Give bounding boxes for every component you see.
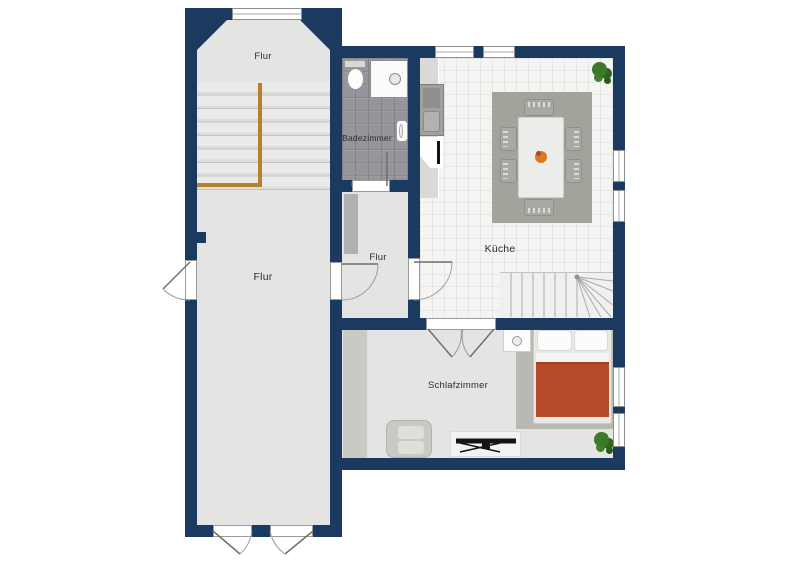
hall-cabinet [344, 194, 358, 254]
window [232, 8, 302, 20]
wall [330, 318, 426, 330]
wall [613, 222, 625, 367]
window [435, 46, 474, 58]
stair-railing-horizontal [197, 183, 262, 187]
wardrobe [343, 330, 368, 458]
window [483, 46, 515, 58]
shower-icon [370, 60, 408, 98]
stove-top-icon [423, 88, 440, 108]
window [613, 367, 625, 407]
oven-icon [423, 111, 440, 132]
door-sill [426, 318, 496, 330]
pillow-icon [537, 330, 572, 351]
room-label-kueche: Küche [460, 243, 540, 255]
room-label-schlafzimmer: Schlafzimmer [398, 380, 518, 391]
wall [613, 182, 625, 190]
room-label-badezimmer: Badezimmer [327, 133, 407, 143]
wall [313, 525, 342, 537]
wall [515, 46, 625, 58]
staircase [197, 82, 330, 190]
window [613, 190, 625, 222]
door-sill [408, 258, 420, 300]
room-label-flur-small: Flur [348, 252, 408, 263]
window [613, 150, 625, 182]
wall [330, 458, 625, 470]
wall [185, 525, 213, 537]
door-sill [352, 180, 390, 192]
toilet-tank-icon [344, 60, 366, 68]
wall [474, 46, 483, 58]
door-sill [270, 525, 313, 537]
armchair-cushion [398, 441, 424, 454]
chair-icon [565, 159, 582, 183]
wall [613, 46, 625, 150]
chair-icon [524, 99, 554, 116]
room-label-flur-upper: Flur [213, 51, 313, 62]
door-sill [185, 260, 197, 300]
nightstand [503, 329, 531, 352]
chair-icon [565, 127, 582, 151]
floor-plan: Flur Flur Badezimmer Flur Küche Schlafzi… [0, 0, 800, 565]
tv-sideboard [450, 431, 521, 457]
wall [252, 525, 270, 537]
plant-icon [592, 62, 607, 77]
stair-railing-vertical [258, 83, 262, 187]
wall [408, 46, 420, 192]
winder-staircase [500, 272, 613, 318]
window [613, 413, 625, 447]
wall [185, 300, 197, 537]
chair-icon [500, 159, 517, 183]
chair-icon [500, 127, 517, 151]
plant-icon [594, 432, 609, 447]
wall [496, 318, 625, 330]
room-label-flur-main: Flur [213, 271, 313, 283]
wall [408, 192, 420, 258]
toilet-icon [347, 68, 364, 90]
chair-icon [524, 199, 554, 216]
wall [185, 8, 197, 260]
wall [330, 300, 342, 537]
wall [408, 300, 420, 318]
wall [330, 180, 352, 192]
fruit-bowl-icon [535, 151, 547, 163]
wall-pier [197, 232, 206, 243]
kitchen-sink-front [437, 141, 440, 164]
wall [390, 180, 420, 192]
door-sill [213, 525, 252, 537]
bed-duvet [536, 362, 609, 417]
bed-footboard [536, 417, 609, 423]
pillow-icon [574, 330, 608, 351]
armchair-cushion [398, 426, 424, 439]
door-sill [330, 262, 342, 300]
